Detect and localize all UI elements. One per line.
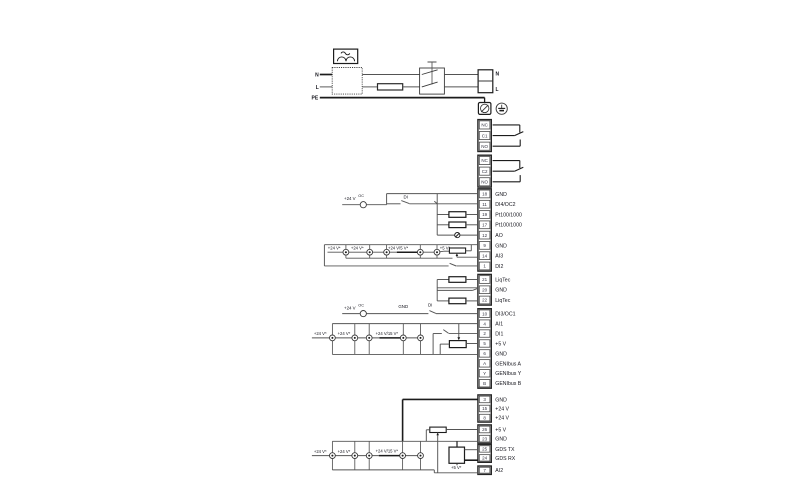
svg-text:LiqTec: LiqTec [495, 298, 510, 304]
svg-text:17: 17 [482, 223, 488, 228]
svg-text:AO: AO [495, 233, 503, 239]
svg-text:18: 18 [482, 192, 488, 197]
svg-text:C1: C1 [482, 133, 488, 138]
svg-text:GND: GND [495, 243, 507, 249]
svg-text:DI: DI [428, 302, 432, 307]
svg-text:15: 15 [482, 406, 488, 411]
svg-text:+5 V: +5 V [495, 427, 506, 433]
svg-text:OC: OC [358, 194, 364, 198]
svg-text:GND: GND [495, 351, 507, 357]
svg-text:11: 11 [482, 202, 487, 207]
svg-text:AI1: AI1 [495, 322, 503, 328]
svg-text:+24 V*: +24 V* [338, 449, 351, 454]
svg-text:NO: NO [481, 144, 488, 149]
svg-text:GDS RX: GDS RX [495, 456, 515, 462]
svg-text:+5 V: +5 V [495, 341, 506, 347]
svg-text:DI1: DI1 [495, 331, 503, 337]
svg-text:25: 25 [482, 447, 488, 452]
svg-text:+24 V/5 V*: +24 V/5 V* [388, 245, 409, 250]
svg-text:+24 V*: +24 V* [351, 246, 364, 251]
svg-text:Y: Y [483, 371, 486, 376]
svg-text:+24 V: +24 V [344, 306, 356, 311]
svg-text:L: L [316, 85, 319, 91]
svg-text:12: 12 [482, 233, 488, 238]
svg-text:A: A [483, 361, 486, 366]
svg-text:GENIbus A: GENIbus A [495, 361, 521, 367]
svg-text:C2: C2 [482, 169, 488, 174]
svg-text:DI3/OC1: DI3/OC1 [495, 312, 515, 318]
svg-text:+5 V*: +5 V* [451, 465, 462, 470]
svg-text:NC: NC [481, 123, 488, 128]
svg-text:GND: GND [495, 288, 507, 294]
svg-text:14: 14 [482, 253, 488, 258]
svg-text:GDS TX: GDS TX [495, 447, 515, 453]
svg-text:20: 20 [482, 287, 488, 292]
svg-text:OC: OC [358, 304, 364, 308]
svg-text:Pt100/1000: Pt100/1000 [495, 212, 522, 218]
svg-text:Pt100/1000: Pt100/1000 [495, 223, 522, 229]
svg-text:DI2: DI2 [495, 264, 503, 270]
svg-text:+24 V: +24 V [495, 415, 509, 421]
svg-text:DI4/OC2: DI4/OC2 [495, 202, 515, 208]
svg-text:AI2: AI2 [495, 468, 503, 474]
svg-text:AI3: AI3 [495, 254, 503, 260]
svg-text:L: L [496, 87, 499, 93]
svg-text:21: 21 [482, 277, 488, 282]
svg-text:+24 V*: +24 V* [338, 331, 351, 336]
svg-text:GND: GND [495, 192, 507, 198]
svg-text:GND: GND [398, 304, 408, 309]
svg-text:23: 23 [482, 436, 488, 441]
svg-text:NC: NC [481, 158, 488, 163]
svg-text:N: N [496, 72, 500, 78]
svg-text:26: 26 [482, 427, 488, 432]
svg-text:+24 V: +24 V [344, 196, 356, 201]
svg-text:+24 V/15 V*: +24 V/15 V* [376, 331, 399, 336]
svg-text:LiqTec: LiqTec [495, 277, 510, 283]
svg-text:NO: NO [481, 179, 488, 184]
svg-text:+24 V/15 V*: +24 V/15 V* [376, 449, 399, 454]
svg-text:10: 10 [482, 311, 488, 316]
svg-text:19: 19 [482, 212, 488, 217]
svg-text:+24 V*: +24 V* [328, 246, 341, 251]
svg-text:DI: DI [404, 195, 408, 200]
svg-text:+24 V: +24 V [495, 406, 509, 412]
svg-text:+24 V*: +24 V* [314, 331, 327, 336]
svg-text:22: 22 [482, 298, 488, 303]
svg-text:GENIbus Y: GENIbus Y [495, 371, 521, 377]
svg-text:GND: GND [495, 397, 507, 403]
svg-text:+24 V*: +24 V* [314, 449, 327, 454]
svg-text:GENIbus B: GENIbus B [495, 381, 521, 387]
svg-text:24: 24 [482, 456, 488, 461]
svg-text:N: N [315, 72, 319, 78]
svg-text:GND: GND [495, 437, 507, 443]
svg-text:B: B [483, 381, 486, 386]
svg-text:PE: PE [312, 96, 319, 102]
